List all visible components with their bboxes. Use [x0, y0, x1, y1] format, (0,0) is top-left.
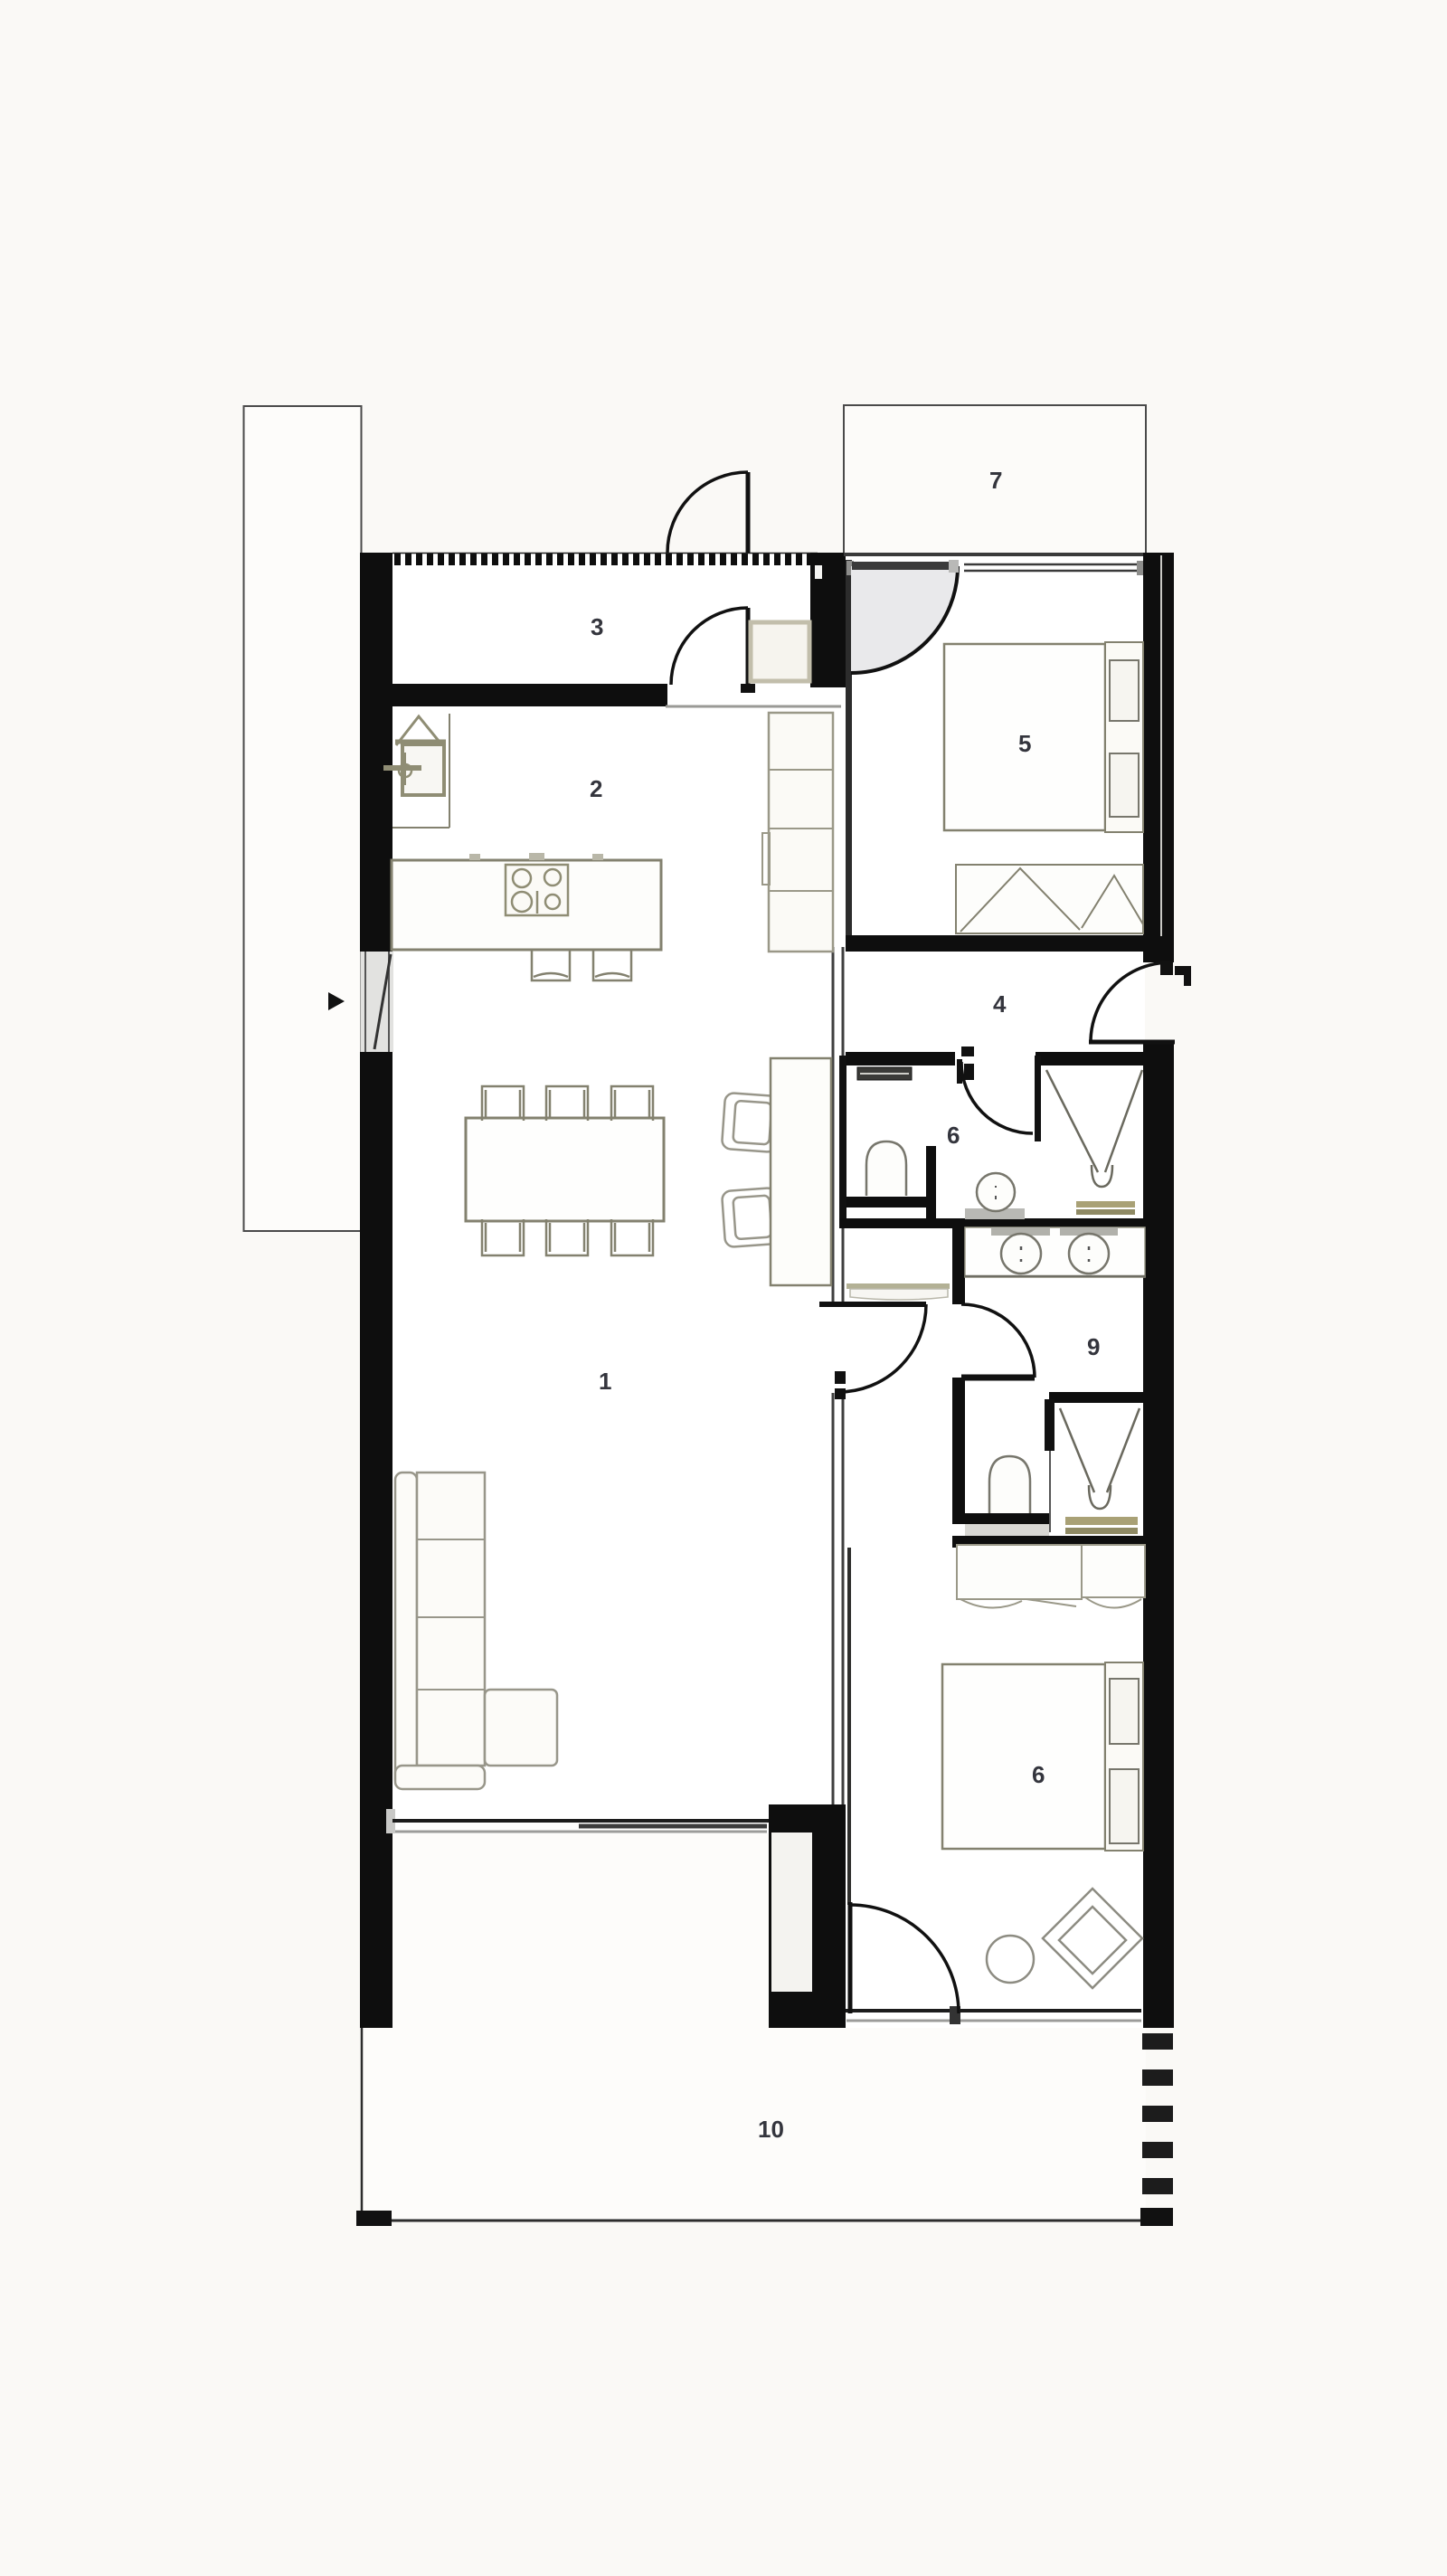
svg-text:10: 10 [758, 2116, 784, 2143]
svg-text:9: 9 [1087, 1333, 1100, 1360]
svg-text:1: 1 [599, 1368, 611, 1395]
svg-text:6: 6 [947, 1122, 960, 1149]
svg-text:4: 4 [993, 990, 1007, 1018]
svg-text:3: 3 [591, 613, 603, 640]
svg-text:6: 6 [1032, 1761, 1045, 1788]
svg-text:2: 2 [590, 775, 602, 802]
svg-text:5: 5 [1018, 730, 1031, 757]
svg-text:7: 7 [989, 467, 1002, 494]
